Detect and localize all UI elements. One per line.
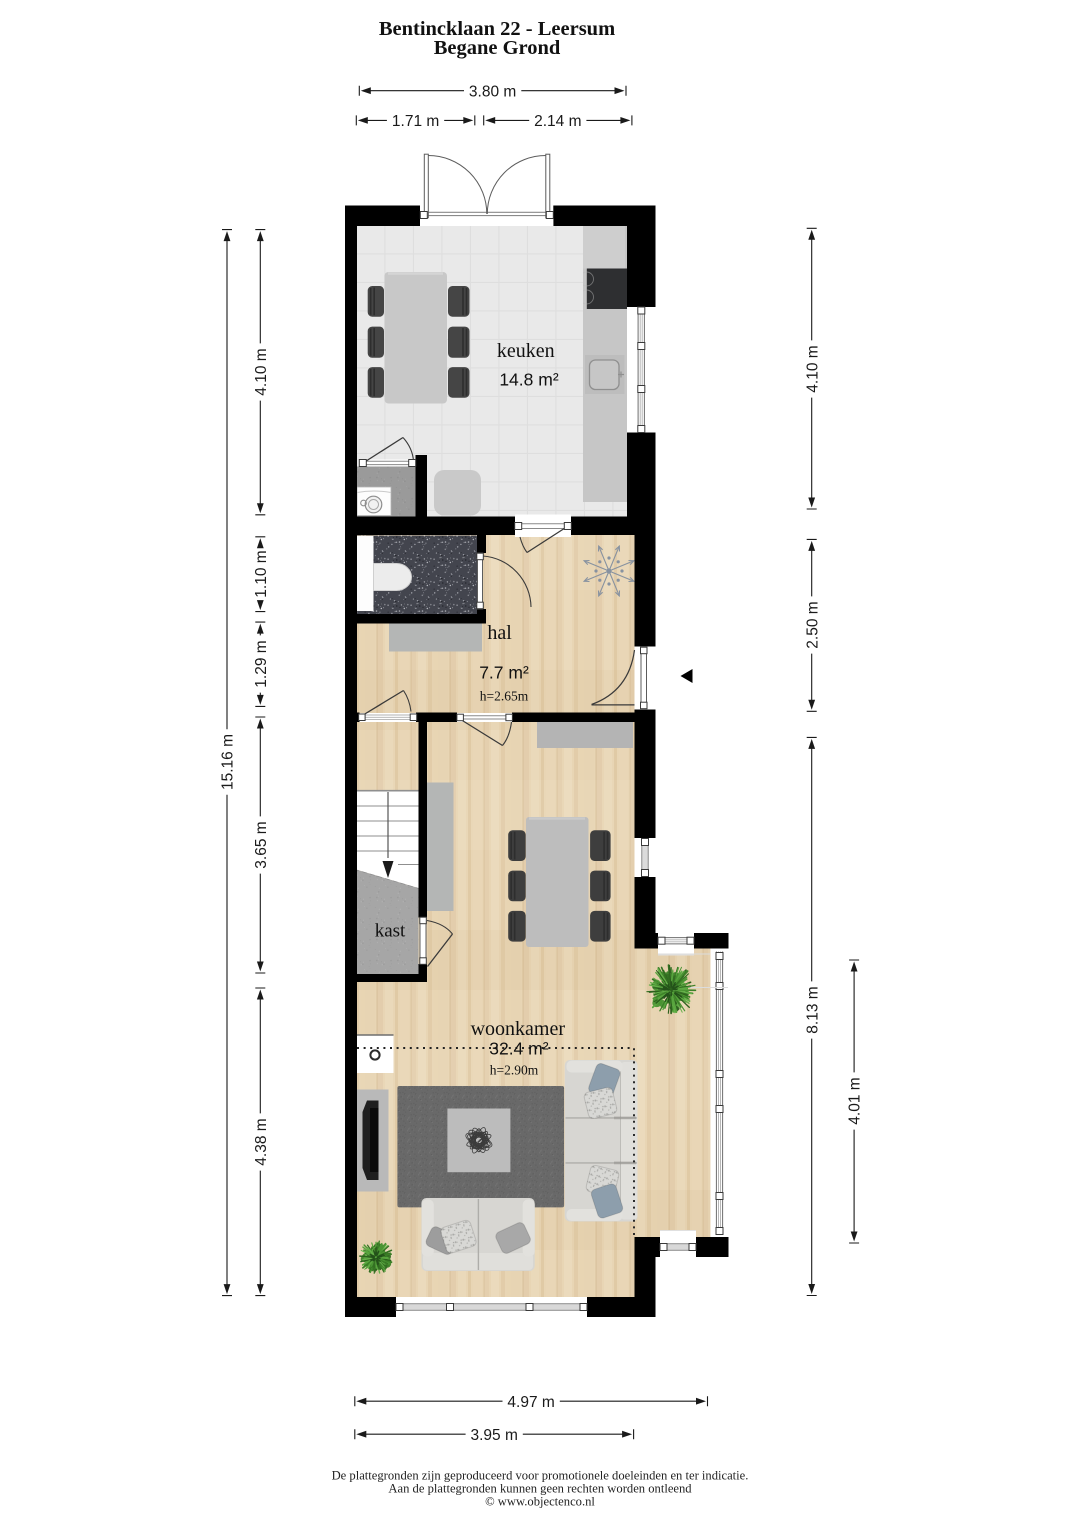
svg-text:3.65 m: 3.65 m	[253, 821, 270, 868]
svg-text:hal: hal	[487, 622, 512, 644]
svg-text:De plattegronden zijn geproduc: De plattegronden zijn geproduceerd voor …	[332, 1469, 749, 1483]
svg-text:8.13 m: 8.13 m	[804, 986, 821, 1033]
svg-text:keuken: keuken	[497, 340, 555, 362]
svg-text:© www.objectenco.nl: © www.objectenco.nl	[485, 1495, 595, 1509]
svg-text:32.4 m²: 32.4 m²	[489, 1039, 548, 1059]
svg-text:woonkamer: woonkamer	[471, 1018, 566, 1040]
svg-text:kast: kast	[375, 921, 406, 942]
svg-text:4.10 m: 4.10 m	[804, 345, 821, 392]
svg-text:14.8 m²: 14.8 m²	[499, 370, 558, 390]
svg-text:7.7 m²: 7.7 m²	[479, 663, 529, 683]
svg-text:2.14 m: 2.14 m	[534, 113, 581, 130]
svg-text:2.50 m: 2.50 m	[804, 601, 821, 648]
svg-text:1.10 m: 1.10 m	[253, 550, 270, 597]
svg-text:Aan de plattegronden kunnen ge: Aan de plattegronden kunnen geen rechten…	[388, 1482, 692, 1496]
svg-text:15.16 m: 15.16 m	[220, 734, 237, 790]
svg-text:4.10 m: 4.10 m	[253, 348, 270, 395]
svg-text:3.95 m: 3.95 m	[471, 1427, 518, 1444]
svg-text:4.01 m: 4.01 m	[847, 1077, 864, 1124]
svg-text:1.29 m: 1.29 m	[253, 640, 270, 687]
svg-text:3.80 m: 3.80 m	[469, 83, 516, 100]
svg-text:1.71 m: 1.71 m	[392, 113, 439, 130]
svg-text:4.38 m: 4.38 m	[253, 1118, 270, 1165]
svg-text:h=2.90m: h=2.90m	[490, 1063, 539, 1078]
svg-text:h=2.65m: h=2.65m	[480, 689, 529, 704]
svg-text:Begane Grond: Begane Grond	[434, 37, 561, 59]
svg-text:4.97 m: 4.97 m	[507, 1394, 554, 1411]
